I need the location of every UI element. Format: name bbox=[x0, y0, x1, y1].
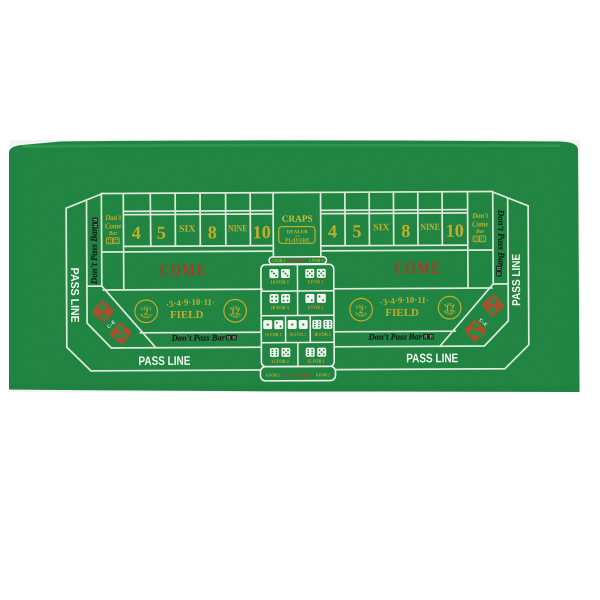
svg-text:Seven: Seven bbox=[288, 257, 307, 264]
svg-text:FIELD: FIELD bbox=[170, 309, 204, 321]
svg-text:PASS LINE: PASS LINE bbox=[406, 351, 458, 365]
svg-text:5: 5 bbox=[157, 223, 166, 243]
svg-text:10: 10 bbox=[446, 221, 464, 241]
svg-text:Don't Pass Bar: Don't Pass Bar bbox=[171, 332, 226, 342]
svg-text:4: 4 bbox=[132, 223, 141, 243]
svg-text:PLAYERS: PLAYERS bbox=[285, 239, 309, 244]
svg-text:8: 8 bbox=[208, 222, 217, 242]
svg-text:PASS LINE: PASS LINE bbox=[138, 354, 190, 368]
svg-text:8 FOR 1: 8 FOR 1 bbox=[316, 372, 331, 377]
svg-text:FIELD: FIELD bbox=[385, 307, 419, 319]
svg-text:Bar: Bar bbox=[108, 231, 119, 237]
svg-text:Don't Pass Bar: Don't Pass Bar bbox=[89, 227, 99, 285]
svg-text:10 FOR 1: 10 FOR 1 bbox=[271, 281, 290, 286]
svg-text:8 FOR 1: 8 FOR 1 bbox=[308, 280, 324, 285]
svg-text:and: and bbox=[295, 234, 300, 238]
svg-text:15 FOR 1: 15 FOR 1 bbox=[265, 333, 282, 338]
svg-text:SIX: SIX bbox=[373, 222, 390, 233]
svg-text:5: 5 bbox=[352, 221, 361, 241]
svg-text:Don't Pass Bar: Don't Pass Bar bbox=[368, 331, 423, 341]
svg-text:Don't Pass Bar: Don't Pass Bar bbox=[496, 209, 506, 267]
svg-text:8 FOR 1: 8 FOR 1 bbox=[266, 373, 281, 378]
svg-text:8 FOR 1: 8 FOR 1 bbox=[308, 306, 324, 311]
svg-text:CRAPS: CRAPS bbox=[282, 215, 313, 225]
svg-text:PASS LINE: PASS LINE bbox=[68, 268, 80, 323]
svg-text:COME: COME bbox=[160, 260, 208, 280]
svg-text:10 FOR 1: 10 FOR 1 bbox=[271, 306, 290, 311]
svg-text:5 FOR 1: 5 FOR 1 bbox=[272, 258, 287, 263]
svg-text:Any Craps: Any Craps bbox=[284, 371, 311, 379]
svg-text:5 FOR 1: 5 FOR 1 bbox=[309, 258, 324, 263]
svg-text:SIX: SIX bbox=[179, 224, 196, 235]
svg-text:Come: Come bbox=[472, 219, 489, 228]
svg-text:PASS LINE: PASS LINE bbox=[511, 254, 523, 306]
svg-text:15 FOR 1: 15 FOR 1 bbox=[307, 360, 325, 365]
svg-text:NINE: NINE bbox=[228, 224, 248, 234]
svg-text:30 FOR 1: 30 FOR 1 bbox=[289, 333, 306, 338]
svg-text:4: 4 bbox=[328, 221, 337, 241]
svg-text:8: 8 bbox=[401, 221, 410, 241]
svg-text:10: 10 bbox=[253, 222, 271, 242]
svg-text:Bar: Bar bbox=[475, 229, 486, 235]
svg-text:15 FOR 1: 15 FOR 1 bbox=[271, 360, 289, 365]
svg-text:NINE: NINE bbox=[420, 223, 440, 233]
svg-text:COME: COME bbox=[394, 258, 442, 278]
svg-text:Come: Come bbox=[105, 221, 122, 230]
svg-text:30 FOR 1: 30 FOR 1 bbox=[314, 333, 331, 338]
